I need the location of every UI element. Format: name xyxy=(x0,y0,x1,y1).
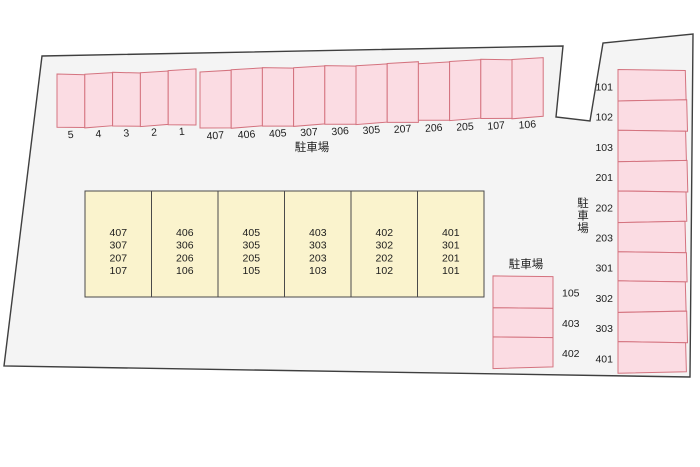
parking-space-label: 2 xyxy=(151,127,158,139)
parking-space xyxy=(85,73,113,128)
unit-number: 302 xyxy=(376,240,394,252)
parking-space xyxy=(325,66,356,125)
unit-number: 401 xyxy=(442,227,460,239)
bottom-parking-lot: 105403402 xyxy=(493,276,580,369)
parking-space-label: 3 xyxy=(123,127,130,139)
parking-space xyxy=(168,69,196,125)
unit-number: 102 xyxy=(376,265,394,277)
parking-space xyxy=(512,58,543,119)
parking-space xyxy=(618,342,686,374)
parking-space xyxy=(418,62,449,120)
parking-space-label: 206 xyxy=(425,122,443,135)
unit-number: 106 xyxy=(176,265,194,277)
parking-space xyxy=(618,191,687,223)
parking-space xyxy=(618,252,687,282)
unit-number: 201 xyxy=(442,252,460,264)
parking-space-label: 307 xyxy=(300,126,318,139)
right-parking-label-char: 駐 xyxy=(577,196,589,210)
parking-space-label: 303 xyxy=(595,323,613,335)
parking-space xyxy=(356,64,387,125)
bottom-parking-lot-label: 駐車場 xyxy=(509,257,544,271)
unit-number: 306 xyxy=(176,240,194,252)
parking-space-label: 1 xyxy=(179,126,186,138)
parking-space-label: 106 xyxy=(518,118,536,131)
parking-space-label: 406 xyxy=(237,128,255,141)
unit-number: 202 xyxy=(376,252,394,264)
parking-space-label: 101 xyxy=(595,82,613,94)
parking-space xyxy=(493,337,553,369)
parking-space-label: 105 xyxy=(562,288,580,300)
parking-space xyxy=(493,276,553,309)
parking-space xyxy=(450,60,481,121)
parking-space xyxy=(57,74,85,128)
right-parking-label-char: 場 xyxy=(577,222,589,235)
parking-space xyxy=(618,221,686,253)
unit-number: 403 xyxy=(309,227,327,239)
parking-space-label: 203 xyxy=(595,233,613,245)
unit-number: 307 xyxy=(110,240,128,252)
parking-space-label: 407 xyxy=(206,129,224,142)
parking-space xyxy=(618,281,686,313)
parking-space xyxy=(387,62,418,123)
parking-lot-diagram: 54321407406405307306305207206205107106 駐… xyxy=(0,0,700,467)
parking-space-label: 403 xyxy=(562,318,580,330)
parking-space xyxy=(618,100,688,132)
parking-space xyxy=(618,311,688,343)
parking-space-label: 401 xyxy=(595,353,613,365)
unit-number: 103 xyxy=(309,265,327,277)
unit-number: 303 xyxy=(309,240,327,252)
parking-space-label: 202 xyxy=(595,202,613,214)
unit-number: 402 xyxy=(376,227,394,239)
parking-space xyxy=(231,68,262,128)
parking-space-label: 207 xyxy=(393,123,411,136)
parking-space-label: 201 xyxy=(595,172,613,184)
parking-space-label: 107 xyxy=(487,120,505,133)
parking-space xyxy=(618,70,686,102)
top-parking-lot-label: 駐車場 xyxy=(295,140,330,154)
parking-space xyxy=(481,59,512,118)
parking-space-label: 302 xyxy=(595,293,613,305)
parking-space-label: 205 xyxy=(456,121,474,134)
unit-number: 206 xyxy=(176,252,194,264)
unit-number: 301 xyxy=(442,240,460,252)
parking-space-label: 103 xyxy=(595,142,613,154)
parking-space xyxy=(294,66,325,127)
unit-number: 105 xyxy=(243,265,261,277)
unit-number: 305 xyxy=(243,240,261,252)
parking-space-label: 405 xyxy=(269,127,287,140)
unit-number: 203 xyxy=(309,252,327,264)
unit-number: 406 xyxy=(176,227,194,239)
unit-number: 407 xyxy=(110,227,128,239)
parking-space-label: 402 xyxy=(562,348,580,360)
parking-space xyxy=(200,70,231,128)
parking-space xyxy=(493,308,553,338)
right-parking-lot-label: 駐車場 xyxy=(577,196,589,235)
parking-space xyxy=(262,68,293,127)
parking-space-label: 5 xyxy=(67,129,74,141)
unit-number: 205 xyxy=(243,252,261,264)
unit-number: 107 xyxy=(110,265,128,277)
parking-space xyxy=(140,71,168,127)
parking-space-label: 305 xyxy=(362,124,380,137)
right-parking-label-char: 車 xyxy=(577,209,589,223)
parking-space-label: 301 xyxy=(595,263,613,275)
parking-space-label: 306 xyxy=(331,125,349,138)
parking-space xyxy=(113,72,141,126)
parking-space-label: 4 xyxy=(95,128,102,140)
parking-space xyxy=(618,160,688,192)
unit-number: 207 xyxy=(110,252,128,264)
unit-number: 101 xyxy=(442,265,460,277)
building-block: 4073072071074063062061064053052051054033… xyxy=(85,191,484,297)
parking-space-label: 102 xyxy=(595,112,613,124)
parking-space xyxy=(618,130,686,162)
unit-number: 405 xyxy=(243,227,261,239)
